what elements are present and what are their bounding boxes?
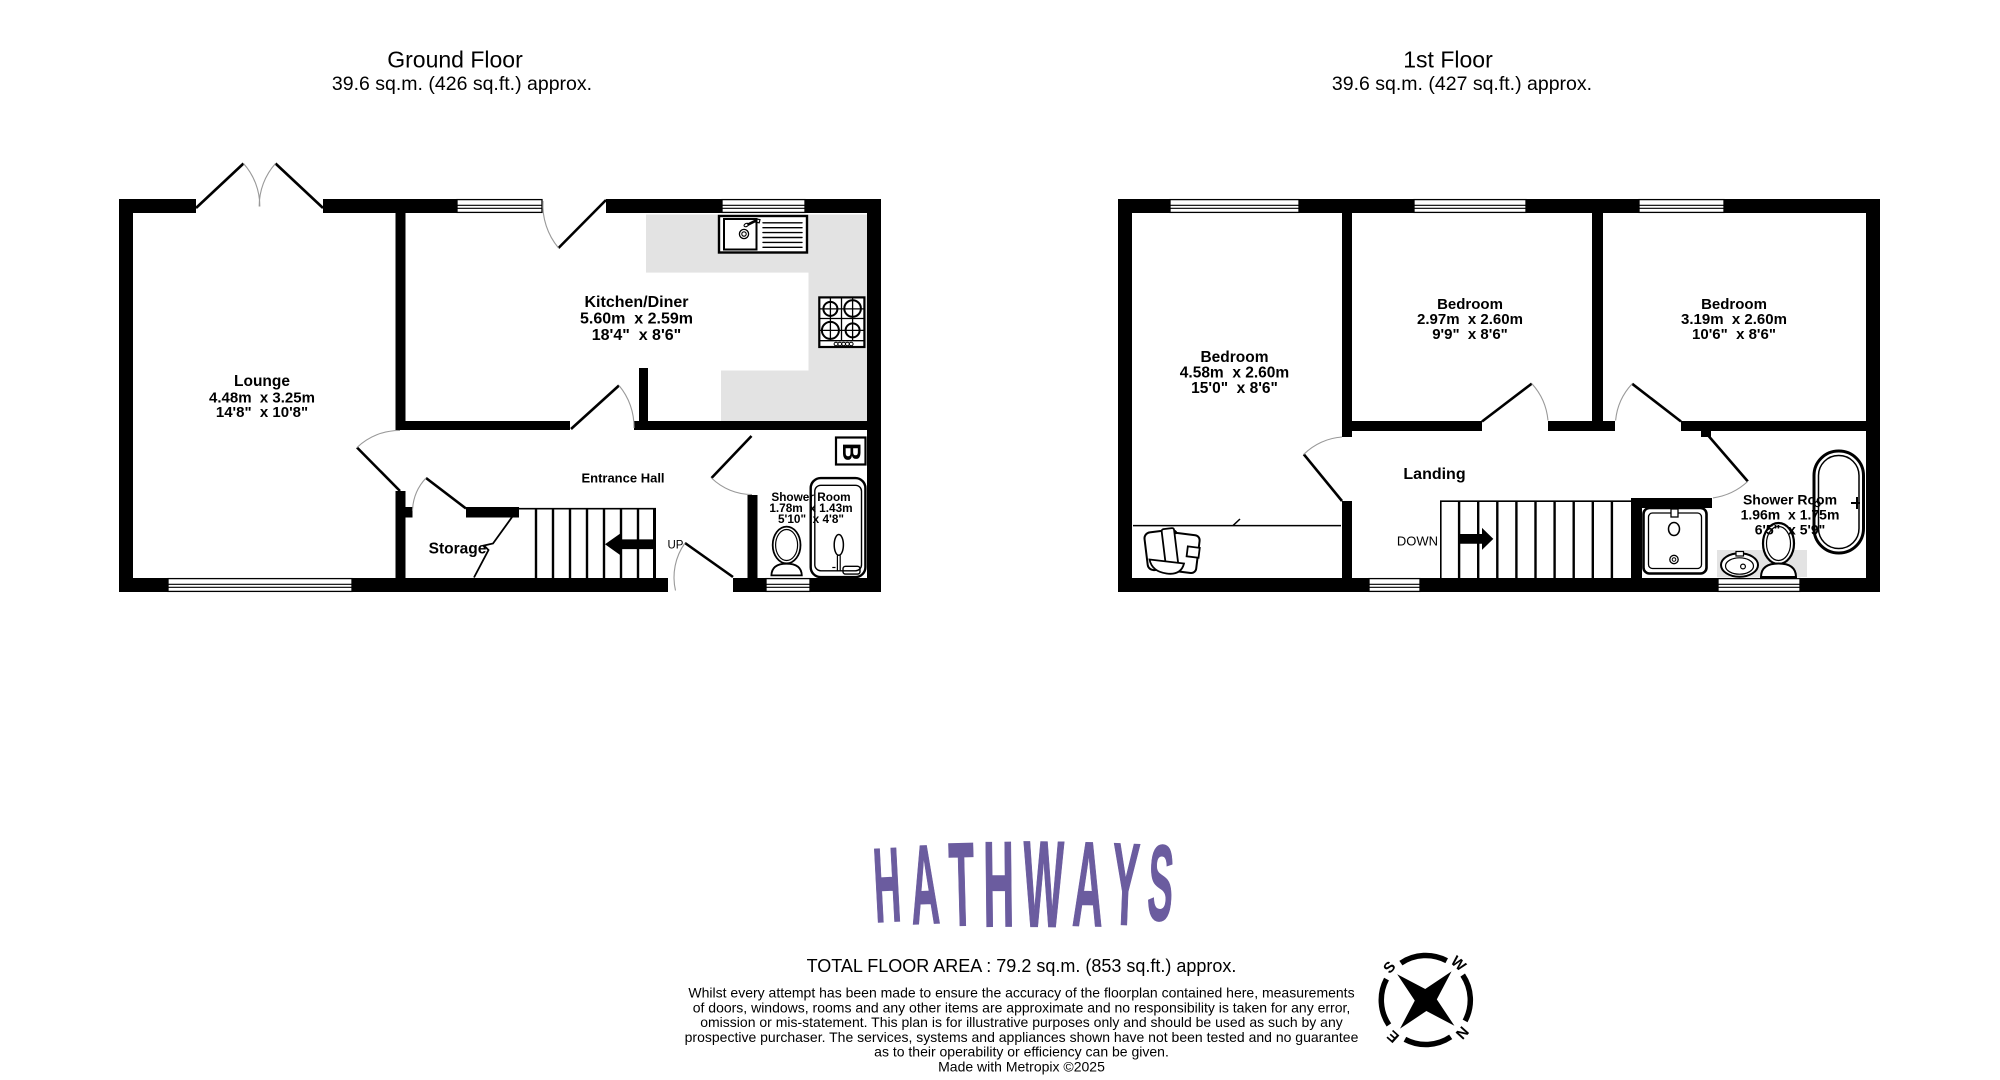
svg-text:Bedroom: Bedroom (1200, 349, 1268, 366)
svg-text:B: B (837, 443, 865, 461)
svg-text:UP: UP (668, 539, 684, 551)
svg-text:1st Floor: 1st Floor (1403, 47, 1493, 73)
svg-text:Landing: Landing (1403, 466, 1465, 483)
svg-text:as to their operability or eff: as to their operability or efficiency ca… (874, 1044, 1169, 1060)
svg-text:A: A (1071, 817, 1105, 953)
svg-text:Whilst every attempt has been: Whilst every attempt has been made to en… (688, 985, 1354, 1001)
svg-text:10'6" x 8'6": 10'6" x 8'6" (1692, 326, 1776, 343)
svg-text:A: A (908, 820, 942, 948)
svg-text:Made with Metropix ©2025: Made with Metropix ©2025 (938, 1059, 1105, 1075)
svg-text:W: W (1023, 816, 1065, 954)
svg-text:Y: Y (1109, 819, 1142, 951)
svg-text:39.6 sq.m. (427 sq.ft.) approx: 39.6 sq.m. (427 sq.ft.) approx. (1332, 73, 1592, 95)
svg-text:H: H (983, 817, 1015, 953)
svg-text:of doors, windows, rooms and a: of doors, windows, rooms and any other i… (693, 999, 1351, 1015)
svg-text:5.60m x 2.59m: 5.60m x 2.59m (580, 311, 693, 328)
svg-text:prospective purchaser. The ser: prospective purchaser. The services, sys… (685, 1029, 1359, 1045)
svg-text:Ground Floor: Ground Floor (387, 47, 523, 73)
svg-text:4.58m x 2.60m: 4.58m x 2.60m (1180, 365, 1289, 382)
svg-text:9'9" x 8'6": 9'9" x 8'6" (1432, 326, 1508, 343)
svg-text:omission or mis-statement. Thi: omission or mis-statement. This plan is … (700, 1014, 1343, 1030)
svg-text:6'5" x 5'9": 6'5" x 5'9" (1755, 522, 1826, 538)
svg-text:1.96m x 1.75m: 1.96m x 1.75m (1741, 507, 1840, 523)
svg-text:Storage: Storage (429, 541, 487, 558)
svg-text:Entrance Hall: Entrance Hall (581, 471, 664, 486)
svg-text:Shower Room: Shower Room (1743, 492, 1837, 508)
svg-text:39.6 sq.m. (426 sq.ft.) approx: 39.6 sq.m. (426 sq.ft.) approx. (332, 73, 592, 95)
svg-text:14'8" x 10'8": 14'8" x 10'8" (216, 404, 308, 421)
svg-text:DOWN: DOWN (1397, 534, 1438, 549)
svg-text:Lounge: Lounge (234, 373, 290, 390)
svg-text:TOTAL FLOOR AREA : 79.2 sq.m.: TOTAL FLOOR AREA : 79.2 sq.m. (853 sq.ft… (807, 956, 1237, 976)
svg-text:T: T (947, 817, 976, 951)
svg-text:5'10" x 4'8": 5'10" x 4'8" (778, 512, 844, 526)
svg-text:15'0" x 8'6": 15'0" x 8'6" (1191, 380, 1278, 397)
svg-text:Kitchen/Diner: Kitchen/Diner (584, 294, 688, 311)
svg-text:18'4" x 8'6": 18'4" x 8'6" (592, 327, 682, 344)
